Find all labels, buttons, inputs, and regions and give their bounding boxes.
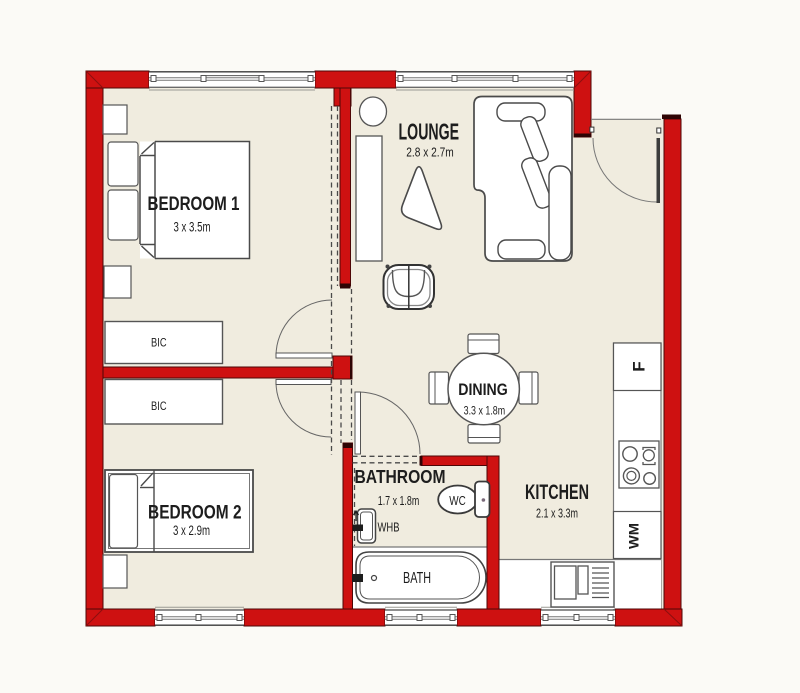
svg-text:BIC: BIC xyxy=(151,336,167,350)
svg-text:KITCHEN: KITCHEN xyxy=(525,481,589,504)
svg-text:BATH: BATH xyxy=(403,570,431,587)
svg-text:WC: WC xyxy=(449,493,466,508)
svg-text:LOUNGE: LOUNGE xyxy=(399,119,460,145)
svg-text:BATHROOM: BATHROOM xyxy=(355,467,446,487)
svg-text:BIC: BIC xyxy=(151,399,167,413)
svg-text:2.8 x 2.7m: 2.8 x 2.7m xyxy=(406,146,454,160)
svg-text:DINING: DINING xyxy=(458,381,508,399)
svg-text:3 x 2.9m: 3 x 2.9m xyxy=(173,523,210,538)
svg-text:2.1 x 3.3m: 2.1 x 3.3m xyxy=(536,507,578,521)
svg-text:3.3 x 1.8m: 3.3 x 1.8m xyxy=(464,404,506,418)
svg-text:3 x 3.5m: 3 x 3.5m xyxy=(174,220,211,235)
svg-text:WM: WM xyxy=(626,523,642,549)
svg-text:BEDROOM 1: BEDROOM 1 xyxy=(148,194,240,215)
svg-text:F: F xyxy=(630,361,649,371)
svg-text:WHB: WHB xyxy=(378,521,400,535)
svg-text:BEDROOM 2: BEDROOM 2 xyxy=(148,503,242,524)
svg-text:1.7 x 1.8m: 1.7 x 1.8m xyxy=(378,494,420,508)
